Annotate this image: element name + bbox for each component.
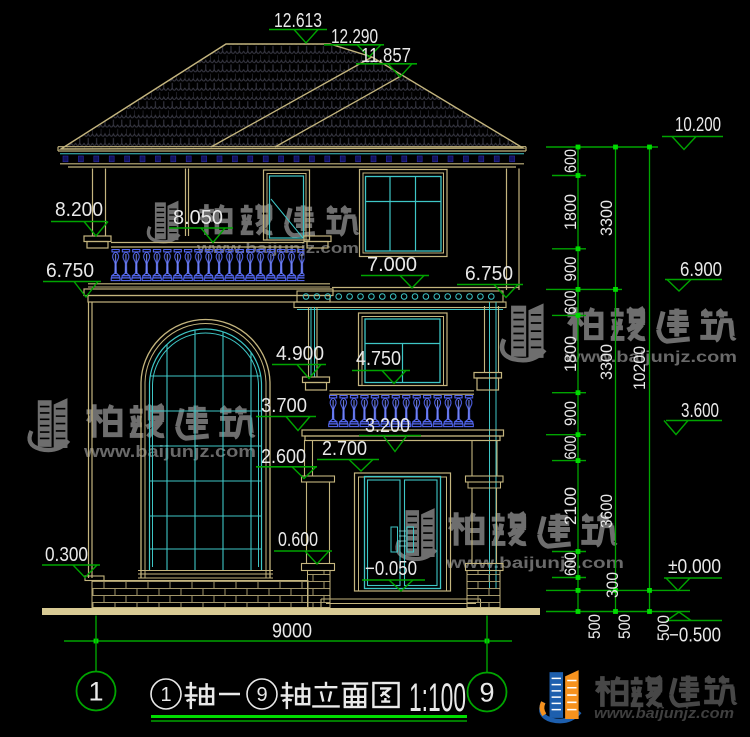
svg-text:3.600: 3.600 xyxy=(681,400,719,422)
svg-text:±0.000: ±0.000 xyxy=(668,556,721,578)
svg-text:9: 9 xyxy=(479,678,494,708)
svg-text:600: 600 xyxy=(562,149,580,173)
svg-text:8.050: 8.050 xyxy=(173,207,223,229)
svg-text:900: 900 xyxy=(562,401,580,426)
svg-text:2.700: 2.700 xyxy=(322,438,367,460)
svg-text:9: 9 xyxy=(256,684,267,706)
svg-text:900: 900 xyxy=(562,257,580,282)
svg-text:3300: 3300 xyxy=(597,200,616,236)
svg-text:500: 500 xyxy=(616,614,634,639)
svg-text:4.900: 4.900 xyxy=(276,343,324,365)
svg-text:1:100: 1:100 xyxy=(409,676,466,720)
svg-text:10.200: 10.200 xyxy=(675,114,721,136)
svg-text:600: 600 xyxy=(562,436,580,460)
svg-text:7.000: 7.000 xyxy=(367,254,417,276)
svg-text:2100: 2100 xyxy=(562,487,580,525)
svg-text:1: 1 xyxy=(88,677,103,707)
svg-text:9000: 9000 xyxy=(272,620,312,643)
svg-text:www.baijunjz.com: www.baijunjz.com xyxy=(564,349,737,366)
svg-text:8.200: 8.200 xyxy=(55,199,103,221)
svg-text:600: 600 xyxy=(562,552,580,576)
svg-text:1: 1 xyxy=(160,684,171,706)
svg-text:500: 500 xyxy=(586,614,604,639)
svg-text:−0.500: −0.500 xyxy=(669,625,721,647)
svg-text:500: 500 xyxy=(655,615,673,641)
svg-text:3600: 3600 xyxy=(597,494,616,528)
svg-text:1800: 1800 xyxy=(562,336,580,372)
svg-text:6.900: 6.900 xyxy=(680,259,722,281)
svg-text:300: 300 xyxy=(604,572,622,598)
svg-text:1800: 1800 xyxy=(562,194,580,230)
svg-text:600: 600 xyxy=(562,291,580,315)
svg-text:6.750: 6.750 xyxy=(465,263,513,285)
svg-text:3.700: 3.700 xyxy=(261,395,307,417)
svg-text:6.750: 6.750 xyxy=(46,260,94,282)
svg-text:0.300: 0.300 xyxy=(45,544,88,566)
svg-text:−0.050: −0.050 xyxy=(365,558,417,580)
svg-text:4.750: 4.750 xyxy=(356,348,401,370)
svg-text:2.600: 2.600 xyxy=(261,446,306,468)
svg-text:10200: 10200 xyxy=(630,346,649,390)
svg-text:0.600: 0.600 xyxy=(278,529,318,551)
svg-text:www.baijunjz.com: www.baijunjz.com xyxy=(594,705,734,722)
svg-text:3.200: 3.200 xyxy=(365,415,410,437)
svg-text:3300: 3300 xyxy=(597,344,616,380)
